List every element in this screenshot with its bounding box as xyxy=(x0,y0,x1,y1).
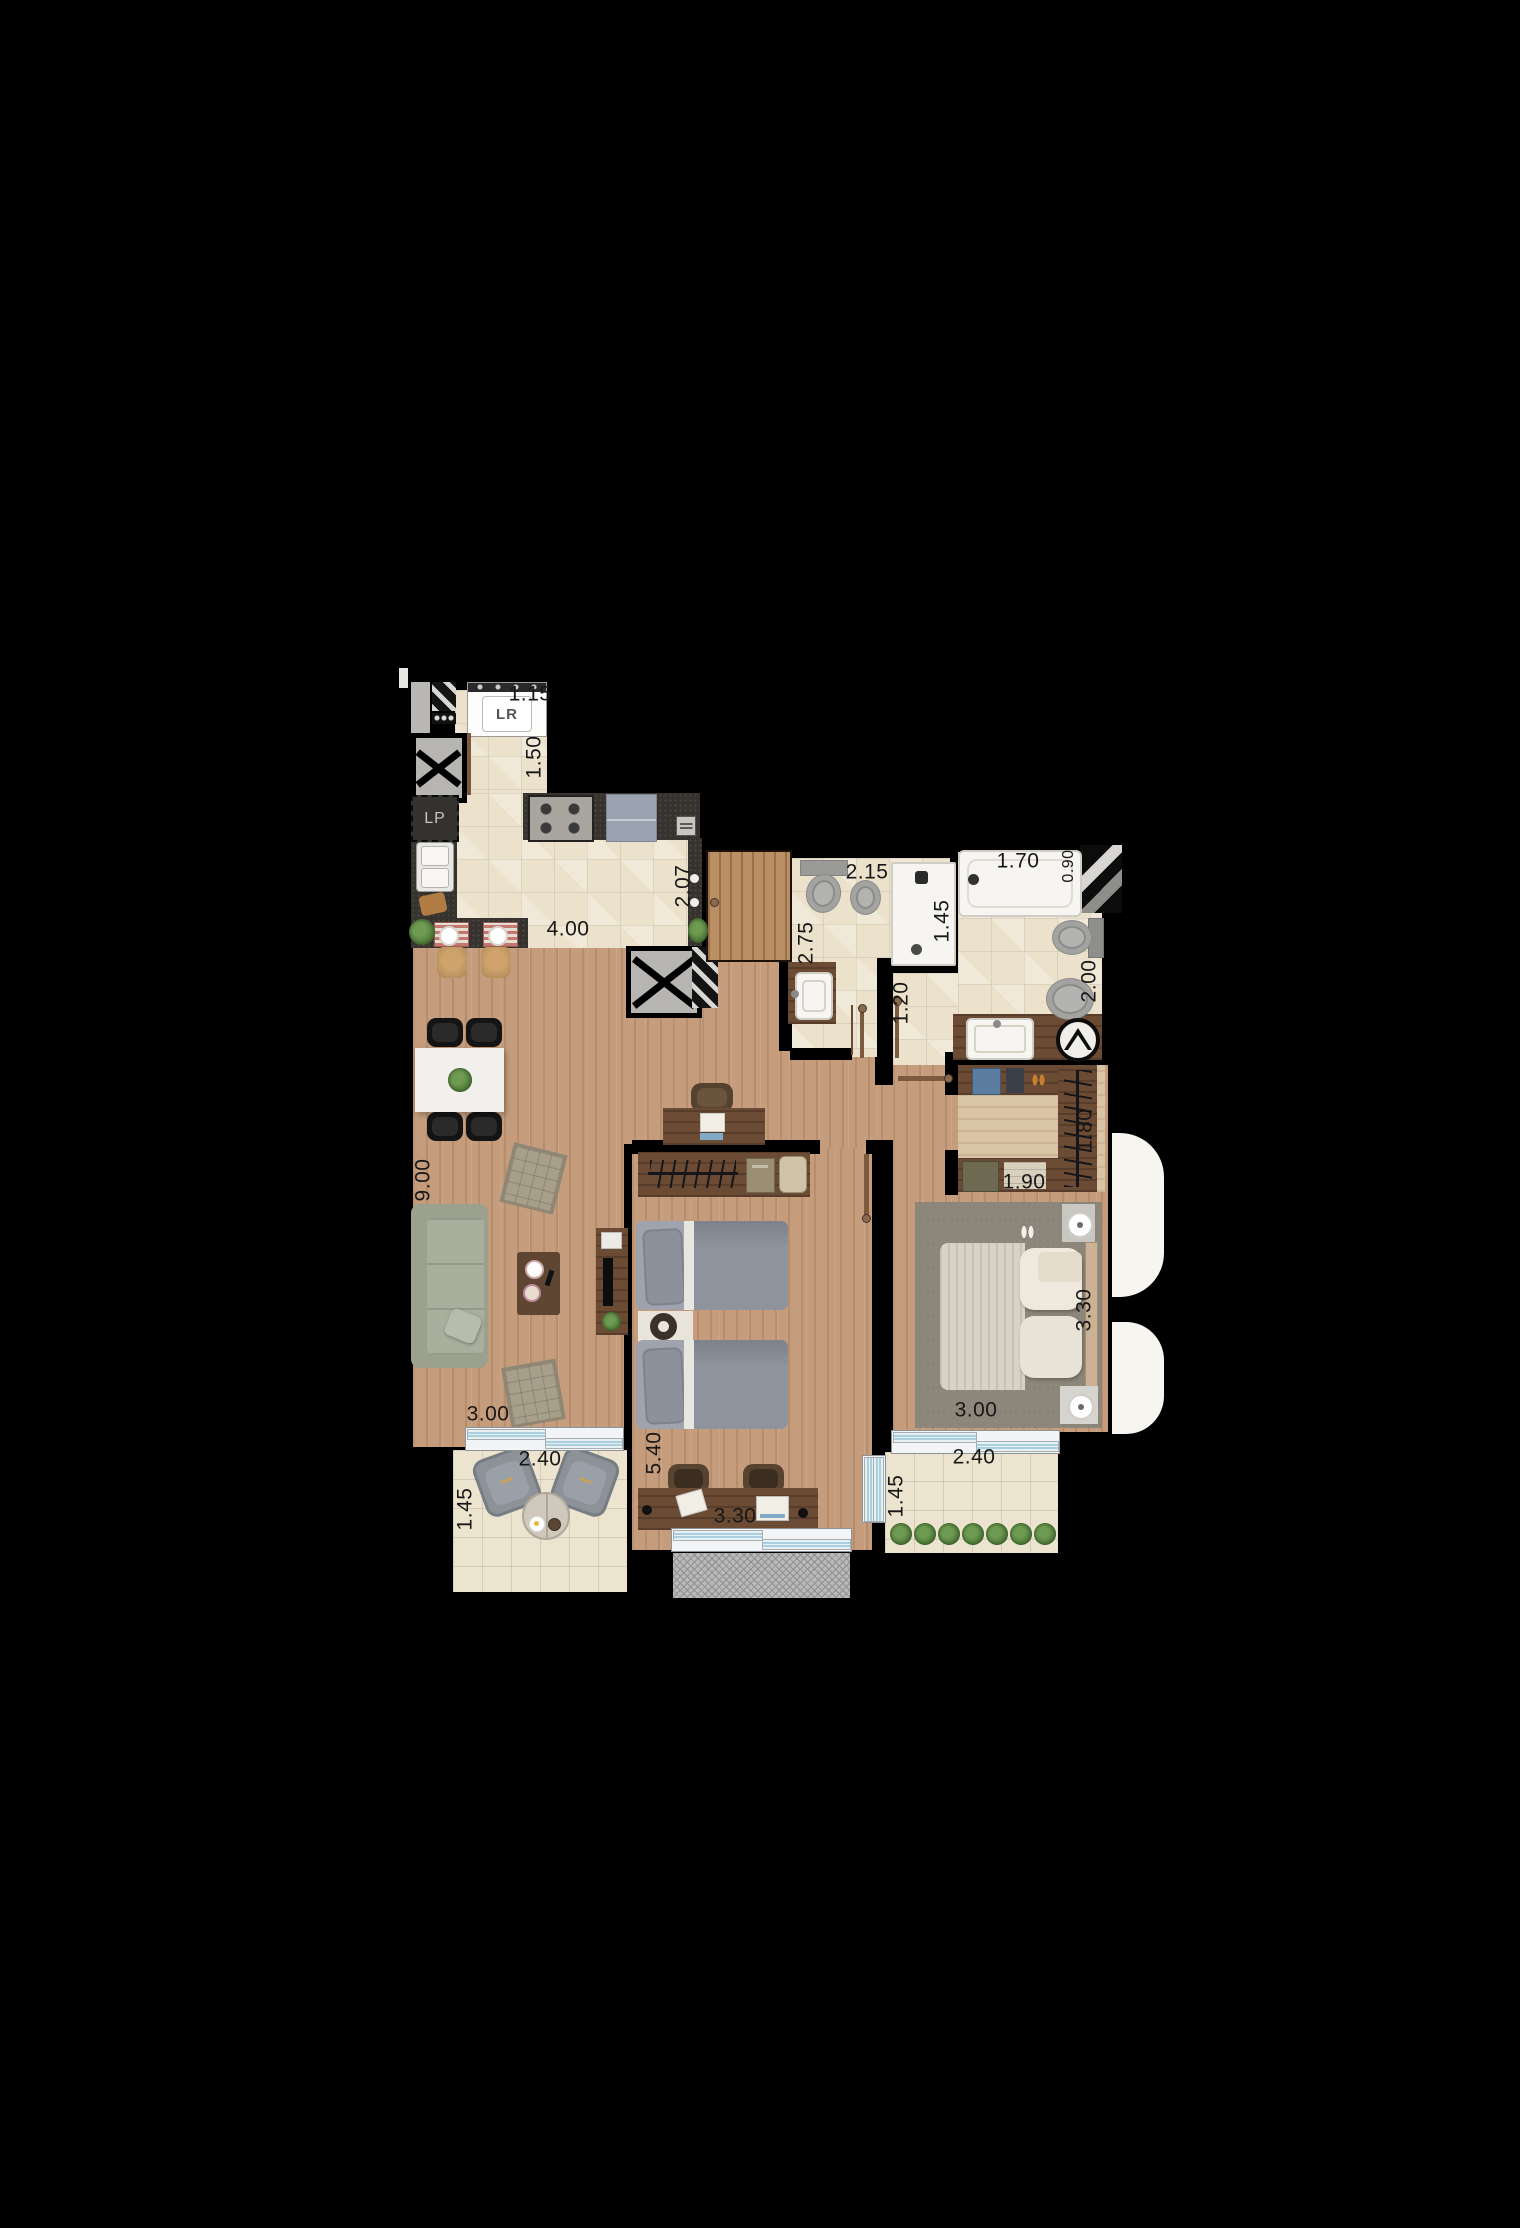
dim-balcony-living-depth: 1.45 xyxy=(455,1488,476,1531)
dim-tub-width: 0.90 xyxy=(1061,849,1077,882)
dim-bath1-width: 2.15 xyxy=(846,862,889,883)
dim-closet-width: 1.90 xyxy=(1003,1172,1046,1193)
plant xyxy=(688,918,708,943)
bathroom-sink xyxy=(795,972,833,1020)
ottoman-pouf xyxy=(501,1359,566,1429)
dim-kitchen-length: 4.00 xyxy=(547,919,590,940)
bathroom1-door-opening xyxy=(852,1048,877,1057)
plant xyxy=(409,919,435,945)
wall-oven-icon xyxy=(676,816,696,836)
planter-shrub xyxy=(1010,1523,1032,1545)
bedroom1-door-leaf xyxy=(864,1154,869,1216)
paper-sheet xyxy=(700,1113,725,1132)
floor-plan-page: { "plan": { "type": "apartment-floor-pla… xyxy=(0,0,1520,2228)
wall xyxy=(945,1150,958,1195)
service-door-leaf xyxy=(467,733,471,795)
door-handle xyxy=(944,1074,953,1083)
shoes xyxy=(1030,1070,1047,1091)
balcony-table xyxy=(522,1492,570,1540)
door-handle xyxy=(858,1004,867,1013)
folded-shirt xyxy=(746,1158,775,1193)
dim-bedroom1-length: 5.40 xyxy=(644,1432,665,1475)
planter-shrub xyxy=(1034,1523,1056,1545)
toilet xyxy=(1052,920,1092,955)
dim-bath1-shower: 1.45 xyxy=(932,900,953,943)
cooktop-stove xyxy=(528,795,594,842)
dining-chair xyxy=(427,1112,463,1141)
dim-suite-bath-width: 2.00 xyxy=(1079,960,1100,1003)
wall xyxy=(790,1048,852,1060)
faucet xyxy=(791,990,799,998)
duvet xyxy=(940,1243,1025,1390)
shower-head-icon xyxy=(915,871,928,884)
planter-shrub xyxy=(962,1523,984,1545)
hatched-shaft xyxy=(432,682,456,711)
glass-pane xyxy=(893,1432,977,1443)
television xyxy=(603,1258,613,1306)
duvet xyxy=(694,1340,788,1429)
plant xyxy=(602,1312,621,1331)
dim-bedroom2-length: 3.30 xyxy=(1074,1289,1095,1332)
folded-pants xyxy=(1006,1068,1024,1093)
single-bed xyxy=(636,1340,788,1429)
door-handle xyxy=(710,898,719,907)
sofa xyxy=(411,1204,488,1368)
dim-balcony-suite-width: 2.40 xyxy=(953,1447,996,1468)
plate xyxy=(488,926,508,946)
coffee-cup xyxy=(548,1518,561,1531)
facade-ledge xyxy=(1112,1322,1164,1434)
dim-service-width: 1.15 xyxy=(509,684,552,705)
dining-chair xyxy=(427,1018,463,1047)
planter-shrub xyxy=(986,1523,1008,1545)
pillow xyxy=(642,1347,686,1425)
planter-shrub xyxy=(938,1523,960,1545)
pillow xyxy=(642,1228,686,1306)
bar-stool xyxy=(437,946,467,978)
slippers xyxy=(1018,1221,1037,1244)
planter-shrub xyxy=(890,1523,912,1545)
desk-lamp xyxy=(642,1505,652,1515)
folded-jeans xyxy=(972,1068,1001,1095)
single-bed xyxy=(636,1221,788,1310)
balcony-side-glass xyxy=(862,1455,886,1523)
dim-balcony-living-width: 2.40 xyxy=(519,1449,562,1470)
faucet xyxy=(993,1020,1001,1028)
placemat xyxy=(434,922,469,947)
shower-drain xyxy=(911,944,922,955)
wall xyxy=(866,1140,893,1154)
dim-closet-length: 1.80 xyxy=(1075,1109,1096,1152)
table-plant xyxy=(448,1068,472,1092)
bedroom1-terrace-slider xyxy=(671,1528,852,1552)
placemat xyxy=(483,922,518,947)
glass-pane xyxy=(673,1530,763,1541)
kitchen-double-sink xyxy=(416,842,454,892)
coffee-table xyxy=(517,1252,560,1315)
desk-lamp xyxy=(798,1508,808,1518)
dim-tub-length: 1.70 xyxy=(997,851,1040,872)
duct-shaft xyxy=(411,682,430,733)
dim-living-width: 3.00 xyxy=(467,1404,510,1425)
dim-bedroom1-width: 3.30 xyxy=(714,1506,757,1527)
towel-bar xyxy=(851,1005,853,1055)
refrigerator xyxy=(606,794,657,842)
elevator-shaft-symbol xyxy=(626,946,702,1018)
bidet xyxy=(850,880,881,915)
dining-chair xyxy=(466,1018,502,1047)
entry-door xyxy=(706,850,792,962)
tub-faucet xyxy=(968,874,979,885)
laptop xyxy=(756,1496,789,1521)
plate xyxy=(439,926,459,946)
glass-pane xyxy=(873,1457,884,1522)
planter-shrub xyxy=(914,1523,936,1545)
dim-living-length: 9.00 xyxy=(413,1159,434,1202)
closet-rod xyxy=(648,1172,738,1175)
folded-blanket xyxy=(1038,1252,1082,1282)
plate xyxy=(525,1260,544,1279)
facade-ledge xyxy=(1112,1133,1164,1297)
dim-bath1-length: 2.75 xyxy=(796,922,817,965)
dim-service-length: 1.50 xyxy=(524,736,545,779)
ventilation-duct-symbol xyxy=(1056,1018,1100,1062)
duvet xyxy=(694,1221,788,1310)
meter-box-icon xyxy=(399,668,408,688)
glass-pane xyxy=(762,1539,852,1550)
dishwasher-reserve-label: LP xyxy=(411,795,459,842)
hatched-shaft xyxy=(1080,845,1122,913)
dim-balcony-suite-depth: 1.45 xyxy=(886,1475,907,1518)
bedside-table xyxy=(650,1313,677,1340)
dim-kitchen-depth: 2.07 xyxy=(673,865,694,908)
terrace-floor xyxy=(673,1553,850,1598)
door-handle xyxy=(862,1214,871,1223)
decor-tray xyxy=(1068,1394,1094,1420)
book xyxy=(601,1232,622,1249)
dim-bath-corridor: 1.20 xyxy=(891,982,912,1025)
bar-stool xyxy=(481,946,511,978)
clock xyxy=(1067,1212,1093,1238)
remote-control xyxy=(545,1270,555,1287)
vent-grille xyxy=(432,713,456,724)
bathroom1-door-leaf xyxy=(860,1006,864,1058)
bag xyxy=(779,1156,807,1193)
glass-pane xyxy=(467,1429,546,1440)
dim-bedroom2-width: 3.00 xyxy=(955,1400,998,1421)
breakfast-plate xyxy=(529,1516,545,1532)
wall xyxy=(875,1057,893,1085)
dining-chair xyxy=(466,1112,502,1141)
bedroom2-door-leaf xyxy=(898,1076,946,1081)
elevator-shaft-symbol xyxy=(411,733,467,803)
plate xyxy=(523,1284,541,1302)
folded-jacket xyxy=(962,1161,999,1192)
notebook xyxy=(700,1133,723,1140)
